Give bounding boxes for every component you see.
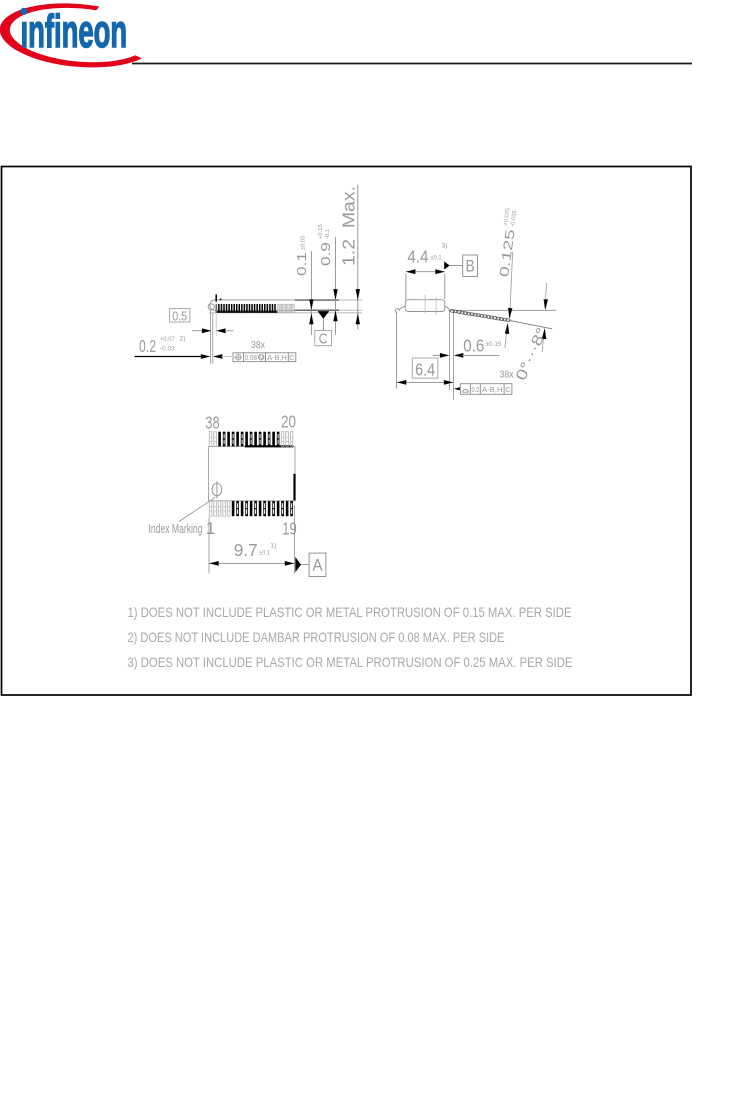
- svg-text:1.2 Max.: 1.2 Max.: [339, 186, 359, 266]
- svg-text:1: 1: [206, 518, 216, 538]
- svg-text:C: C: [505, 385, 511, 394]
- svg-text:0.5: 0.5: [172, 309, 187, 323]
- svg-text:1): 1): [270, 543, 276, 550]
- svg-text:A-B,H: A-B,H: [482, 385, 503, 394]
- svg-text:+0.07: +0.07: [160, 336, 175, 343]
- svg-text:9.7: 9.7: [234, 540, 258, 560]
- svg-text:±0.1: ±0.1: [431, 255, 442, 262]
- svg-text:C: C: [319, 330, 328, 347]
- svg-text:0.1: 0.1: [294, 252, 309, 276]
- svg-text:-0.03: -0.03: [160, 346, 175, 353]
- svg-text:0.2: 0.2: [472, 385, 480, 394]
- svg-text:1) DOES NOT INCLUDE PLASTIC OR: 1) DOES NOT INCLUDE PLASTIC OR METAL PRO…: [128, 604, 572, 620]
- svg-text:0.6: 0.6: [463, 336, 484, 356]
- svg-text:B: B: [466, 257, 475, 276]
- svg-text:±0.1: ±0.1: [259, 550, 270, 557]
- svg-text:±0.15: ±0.15: [486, 341, 502, 348]
- svg-text:6.4: 6.4: [415, 359, 435, 379]
- svg-text:3) DOES NOT INCLUDE PLASTIC OR: 3) DOES NOT INCLUDE PLASTIC OR METAL PRO…: [128, 654, 573, 670]
- svg-text:ınfineon: ınfineon: [21, 6, 128, 58]
- svg-text:2) DOES NOT INCLUDE DAMBAR PRO: 2) DOES NOT INCLUDE DAMBAR PROTRUSION OF…: [128, 629, 505, 645]
- svg-text:0.9: 0.9: [318, 242, 333, 266]
- svg-text:0.08: 0.08: [245, 353, 258, 362]
- svg-text:38: 38: [205, 412, 220, 432]
- svg-text:20: 20: [281, 412, 296, 432]
- svg-text:A-B,H: A-B,H: [267, 353, 287, 362]
- svg-text:±0.05: ±0.05: [301, 236, 307, 250]
- svg-text:M: M: [259, 355, 264, 361]
- svg-text:2): 2): [180, 336, 186, 343]
- svg-text:-0.1: -0.1: [325, 229, 331, 239]
- svg-text:Index Marking: Index Marking: [149, 521, 203, 536]
- svg-text:4.4: 4.4: [407, 246, 428, 266]
- svg-text:3): 3): [442, 243, 448, 250]
- svg-text:38x: 38x: [500, 369, 515, 381]
- svg-text:38x: 38x: [251, 339, 266, 351]
- svg-text:0.2: 0.2: [139, 336, 156, 356]
- svg-text:+0.15: +0.15: [318, 224, 324, 239]
- svg-text:A: A: [313, 556, 324, 575]
- svg-text:C: C: [289, 353, 295, 362]
